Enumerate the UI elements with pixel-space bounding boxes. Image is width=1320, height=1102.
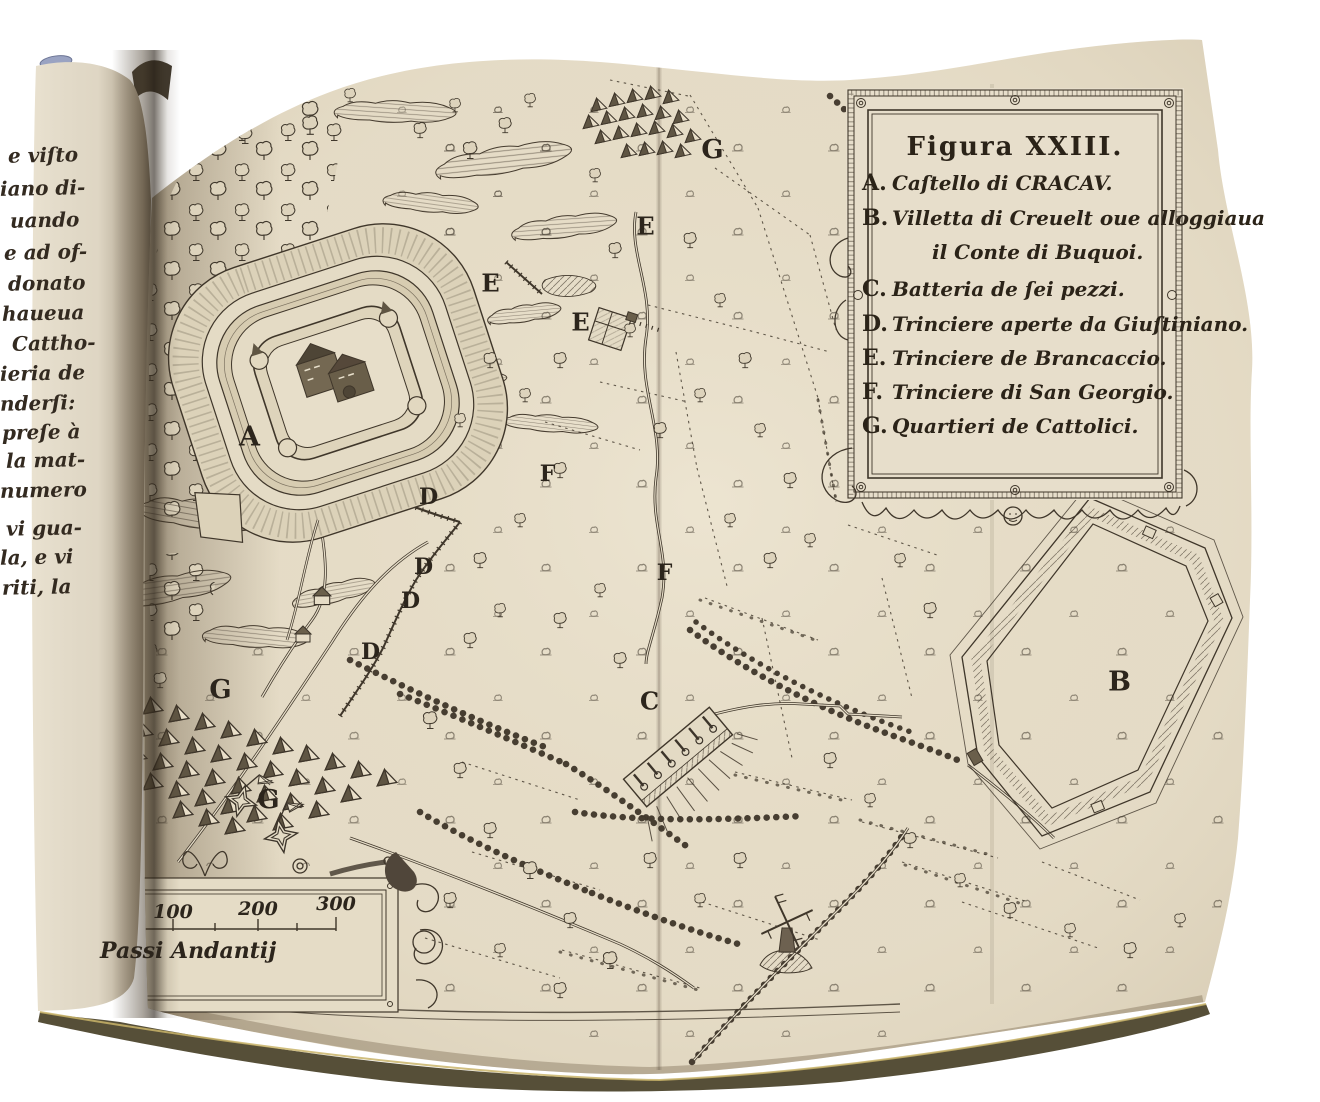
book-photo-backdrop: e viſto iano di- uando e ad of- donato h… [0,0,1320,1102]
gutter-shadow [112,50,180,1018]
legend-cartouche [822,88,1197,525]
engraved-map-plate [0,0,1320,1102]
